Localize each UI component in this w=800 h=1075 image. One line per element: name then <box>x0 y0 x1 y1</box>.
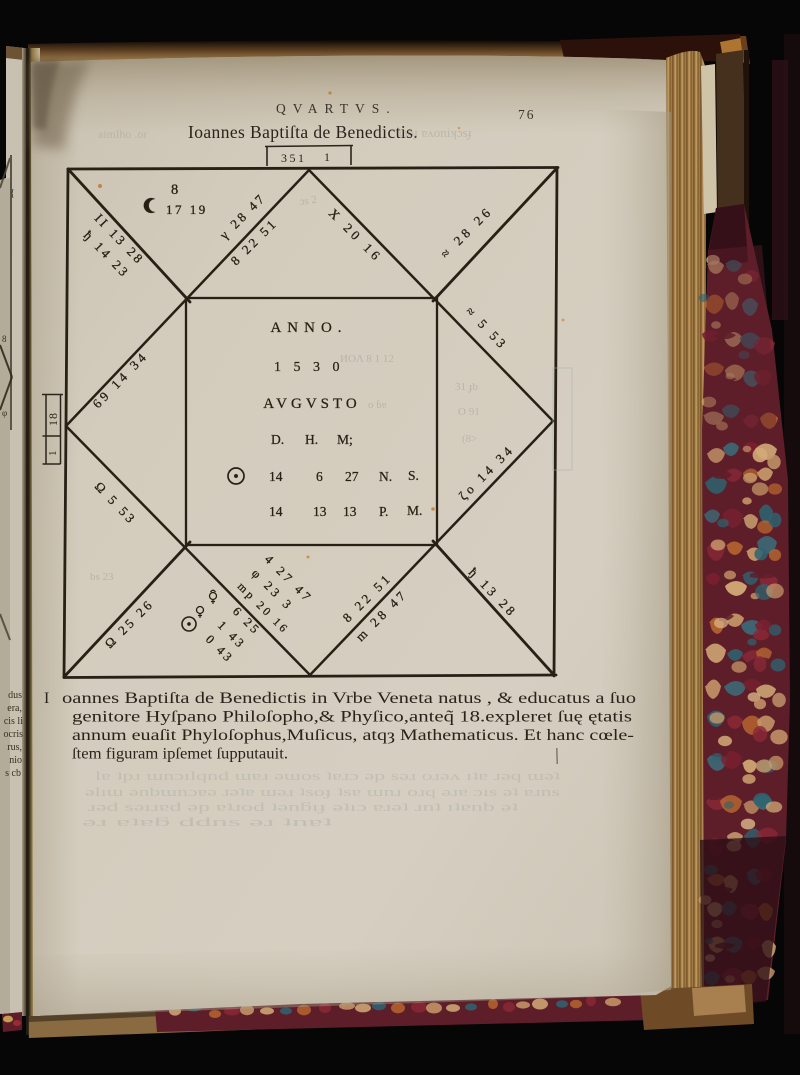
svg-text:ʇɔoɟ ɐʌoniʞɔsɟ: ʇɔoɟ ɐʌoniʞɔsɟ <box>398 125 472 140</box>
svg-text:cis li: cis li <box>4 716 23 727</box>
svg-text:351: 351 <box>281 151 307 165</box>
svg-text:{: { <box>10 188 15 199</box>
svg-text:76: 76 <box>518 107 536 122</box>
svg-text:ɹǝd sǝıɹɐd ǝp ɐʇɹod ʇǝnƃıɟ ǝʇı: ɹǝd sǝıɹɐd ǝp ɐʇɹod ʇǝnƃıɟ ǝʇıɔ ɐɹǝʇ ɹnʇ… <box>88 799 519 814</box>
svg-text:lɐ ʇpɹ ɯnɔılqnd ɯɐɹ ǝɯos ʇɐɹɔ: lɐ ʇpɹ ɯnɔılqnd ɯɐɹ ǝɯos ʇɐɹɔ ǝp sǝɹ oɹǝ… <box>95 768 561 783</box>
svg-text:AVGVSTO: AVGVSTO <box>263 396 360 412</box>
svg-text:8: 8 <box>2 334 7 344</box>
svg-text:o ɓɐ: o ɓɐ <box>368 399 387 411</box>
svg-text:1: 1 <box>324 150 330 164</box>
svg-text:oannes Baptiſta de Benedictis: oannes Baptiſta de Benedictis in Vrbe Ve… <box>62 690 636 707</box>
svg-text:17 19: 17 19 <box>166 202 208 217</box>
svg-text:annum euaſit Phyloſophus,Muſic: annum euaſit Phyloſophus,Muſicus, atqȝ M… <box>72 727 634 744</box>
svg-text:1: 1 <box>47 451 59 457</box>
svg-text:Ioannes Baptiſta de Benedictis: Ioannes Baptiſta de Benedictis. <box>188 122 418 142</box>
svg-text:O 91: O 91 <box>458 406 480 418</box>
svg-text:era,: era, <box>7 703 22 714</box>
svg-text:ǝlıɯ ǝnbɯnɔɐǝ ɹǝʇɐ ɯǝɹ ʇsoɟ ʇs: ǝlıɯ ǝnbɯnɔɐǝ ɹǝʇɐ ɯǝɹ ʇsoɟ ʇsɐ ɯnɹ oɹq … <box>85 784 560 799</box>
svg-text:13: 13 <box>343 504 357 519</box>
svg-text:27: 27 <box>345 469 359 484</box>
svg-text:14: 14 <box>269 504 283 519</box>
svg-text:ANNO.: ANNO. <box>270 320 347 336</box>
svg-text:6: 6 <box>316 469 323 484</box>
svg-text:14: 14 <box>269 469 283 484</box>
svg-text:D.: D. <box>271 432 284 447</box>
svg-text:s cb: s cb <box>5 768 21 779</box>
svg-text:QVARTVS.: QVARTVS. <box>276 101 397 116</box>
svg-text:H.: H. <box>305 432 318 447</box>
svg-text:M;: M; <box>337 432 353 447</box>
svg-text:ſtem figuram ipſemet ſupputaui: ſtem figuram ipſemet ſupputauit. <box>72 746 288 763</box>
svg-text:nio: nio <box>9 755 22 766</box>
svg-text:genitore Hyſpano Philoſopho,&: genitore Hyſpano Philoſopho,& Phyſico,an… <box>72 709 632 726</box>
svg-text:rus,: rus, <box>7 742 22 753</box>
svg-text:ИOΛ 8 1 12: ИOΛ 8 1 12 <box>340 353 394 365</box>
svg-text:aimlho .or: aimlho .or <box>98 127 147 141</box>
svg-text:8: 8 <box>171 182 178 198</box>
svg-text:N.: N. <box>379 469 392 484</box>
svg-text:13: 13 <box>313 504 327 519</box>
svg-text:I: I <box>44 690 49 707</box>
svg-text:ǝɹ ɐʇɐƃ ddns ǝɹ ʇnɐʇ: ǝɹ ɐʇɐƃ ddns ǝɹ ʇnɐʇ <box>82 814 333 829</box>
svg-text:S.: S. <box>408 468 419 483</box>
svg-text:(8>: (8> <box>462 433 477 445</box>
svg-text:P.: P. <box>379 504 388 519</box>
svg-text:bs 23: bs 23 <box>90 571 114 583</box>
svg-text:ɔs 2: ɔs 2 <box>299 194 318 208</box>
svg-text:M.: M. <box>407 503 422 518</box>
svg-text:dus: dus <box>8 690 22 701</box>
svg-text:ocris: ocris <box>4 729 24 740</box>
svg-text:φ: φ <box>2 408 7 418</box>
svg-text:31 ɟb: 31 ɟb <box>455 381 478 393</box>
svg-text:18: 18 <box>46 412 60 426</box>
